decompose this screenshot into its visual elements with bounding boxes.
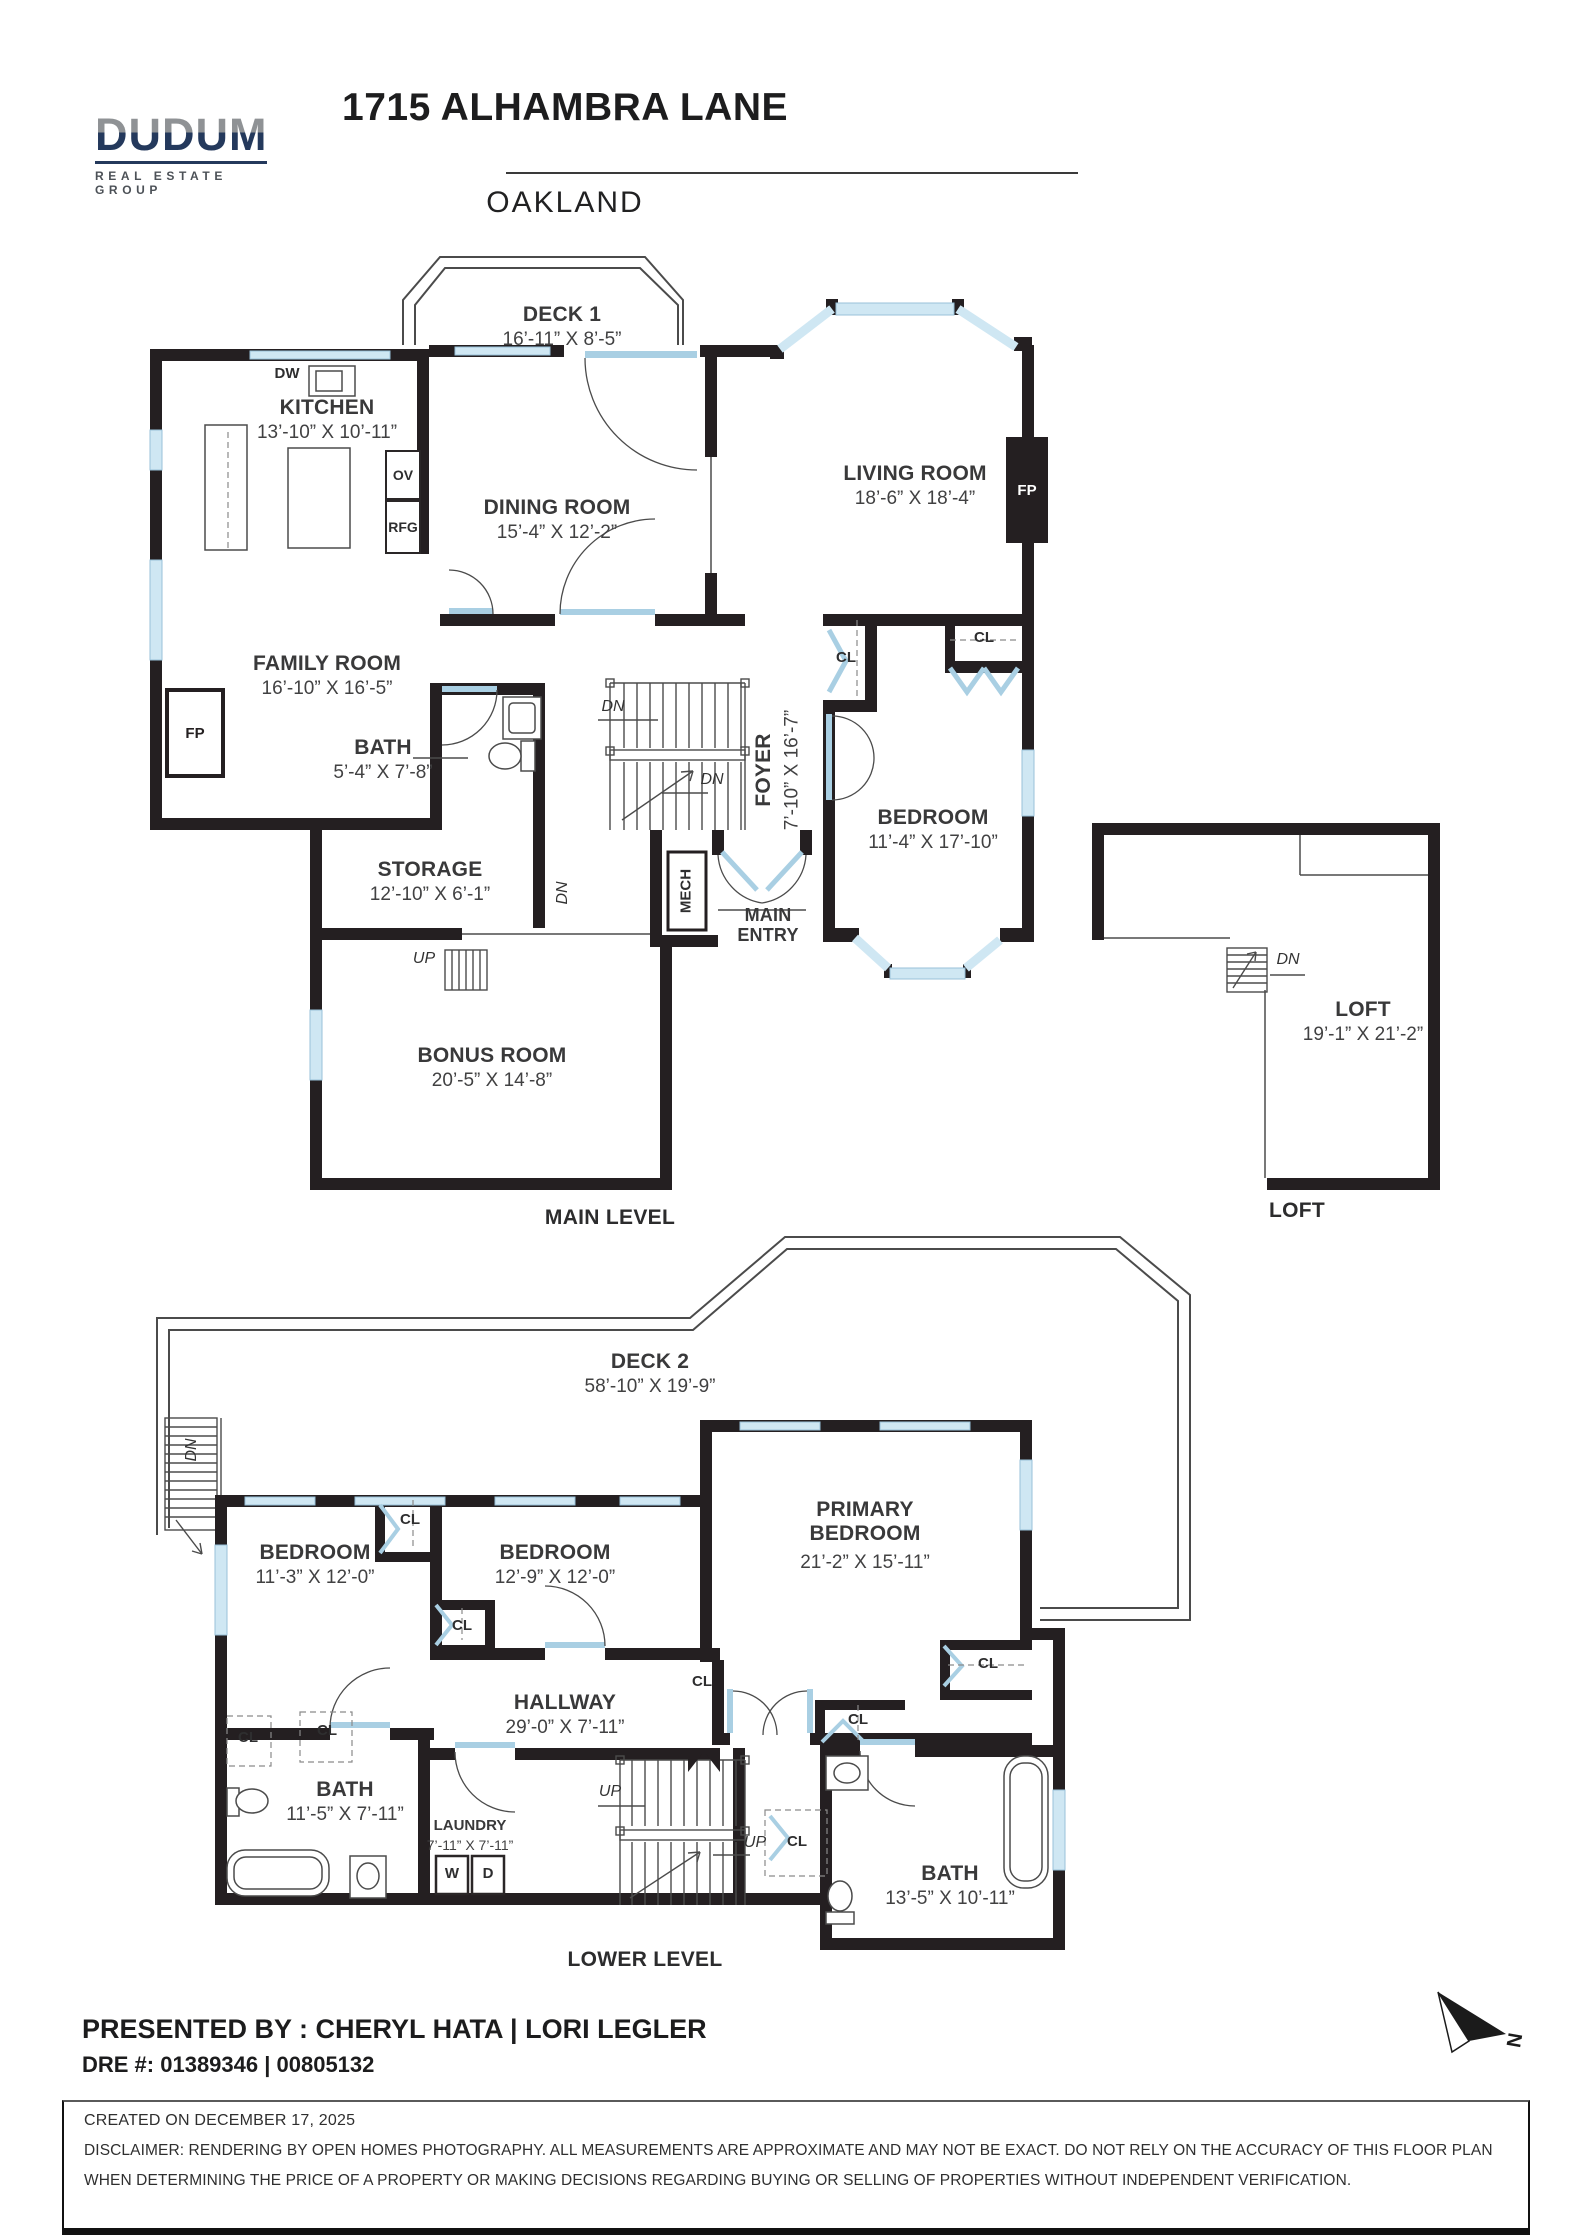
- room-bath-main-name: BATH: [354, 736, 412, 760]
- room-foyer-name: FOYER: [752, 733, 776, 806]
- brand-rule: [95, 161, 267, 164]
- room-storage-dims: 12’-10” X 6’-1”: [370, 884, 490, 905]
- disclaimer-line1: DISCLAIMER: RENDERING BY OPEN HOMES PHOT…: [84, 2142, 1493, 2160]
- closet-bedrooms-label: CL: [400, 1512, 420, 1529]
- room-living-dims: 18’-6” X 18’-4”: [855, 488, 975, 509]
- floorplan-page: DUDUM REAL ESTATE GROUP 1715 ALHAMBRA LA…: [0, 0, 1584, 2240]
- loft-caption: LOFT: [1269, 1199, 1325, 1223]
- oven-label: OV: [385, 450, 421, 500]
- room-deck1-dims: 16’-11” X 8’-5”: [503, 329, 622, 350]
- room-bath1-dims: 11’-5” X 7’-11”: [286, 1804, 404, 1825]
- room-primary-dims: 21’-2” X 15’-11”: [800, 1552, 930, 1573]
- room-bath1-name: BATH: [316, 1778, 374, 1802]
- closet-primary2-label: CL: [848, 1712, 868, 1729]
- lower-stairs: [598, 1756, 750, 1905]
- room-family-name: FAMILY ROOM: [253, 652, 401, 676]
- presented-by: PRESENTED BY : CHERYL HATA | LORI LEGLER: [82, 2014, 707, 2045]
- room-hallway-dims: 29’-0” X 7’-11”: [506, 1717, 625, 1738]
- room-hallway-name: HALLWAY: [514, 1691, 616, 1715]
- room-dining-dims: 15’-4” X 12’-2”: [497, 522, 617, 543]
- room-bedroom-main-name: BEDROOM: [877, 806, 988, 830]
- stair-dn-deck2-label: DN: [183, 1438, 201, 1461]
- room-laundry-name: LAUNDRY: [434, 1818, 507, 1835]
- stair-dn-loft-label: DN: [1276, 951, 1299, 969]
- lower-level-caption: LOWER LEVEL: [568, 1948, 723, 1972]
- closet-stairs-label: CL: [787, 1834, 807, 1851]
- title-rule: [506, 172, 1078, 174]
- closet-bath1b-label: CL: [317, 1723, 337, 1740]
- room-kitchen-dims: 13’-10” X 10’-11”: [257, 422, 397, 443]
- closet-primary-right-label: CL: [978, 1656, 998, 1673]
- page-title: 1715 ALHAMBRA LANE: [342, 86, 788, 130]
- brand-name: DUDUM: [95, 112, 285, 157]
- room-bonus-name: BONUS ROOM: [418, 1044, 567, 1068]
- room-bath-main-dims: 5’-4” X 7’-8”: [333, 762, 432, 783]
- main-stairs: [445, 679, 1267, 992]
- washer-label: W: [445, 1866, 459, 1883]
- disclaimer-line2: WHEN DETERMINING THE PRICE OF A PROPERTY…: [84, 2172, 1351, 2190]
- room-loft-name: LOFT: [1335, 998, 1391, 1022]
- dishwasher-label: DW: [275, 366, 300, 383]
- stair-up2-label: UP: [744, 1834, 766, 1852]
- room-deck1-name: DECK 1: [523, 303, 601, 327]
- north-arrow-icon: [1438, 1992, 1506, 2052]
- room-foyer-dims: 7’-10” X 16’-7”: [781, 710, 802, 830]
- fireplace-living-label: FP: [1006, 437, 1048, 543]
- room-family-dims: 16’-10” X 16’-5”: [262, 678, 393, 699]
- created-date: CREATED ON DECEMBER 17, 2025: [84, 2112, 355, 2130]
- room-bath2-name: BATH: [921, 1862, 979, 1886]
- page-subtitle: OAKLAND: [486, 186, 643, 220]
- closet-bedroom2-label: CL: [452, 1618, 472, 1635]
- room-bedroom1-name: BEDROOM: [259, 1541, 370, 1565]
- stair-dn2-label: DN: [700, 771, 723, 789]
- mech-label: MECH: [679, 869, 696, 913]
- refrigerator-label: RFG: [385, 500, 421, 554]
- fireplace-family-label: FP: [165, 688, 225, 778]
- floor-plan-drawing: [0, 0, 1584, 2240]
- dre-number: DRE #: 01389346 | 00805132: [82, 2052, 374, 2078]
- brand-logo: DUDUM REAL ESTATE GROUP: [95, 112, 285, 197]
- room-bedroom2-name: BEDROOM: [499, 1541, 610, 1565]
- closet-hall-label: CL: [692, 1674, 712, 1691]
- room-kitchen-name: KITCHEN: [280, 396, 375, 420]
- room-storage-name: STORAGE: [378, 858, 483, 882]
- stair-up1-label: UP: [599, 1783, 621, 1801]
- closet-bedroom-label: CL: [974, 630, 994, 647]
- dryer-label: D: [483, 1866, 494, 1883]
- room-living-name: LIVING ROOM: [843, 462, 986, 486]
- room-bath2-dims: 13’-5” X 10’-11”: [885, 1888, 1015, 1909]
- main-entry-label: MAIN ENTRY: [713, 905, 823, 945]
- room-primary-name: PRIMARY BEDROOM: [775, 1498, 955, 1545]
- stair-up-bonus-label: UP: [413, 950, 435, 968]
- room-bedroom2-dims: 12’-9” X 12’-0”: [495, 1567, 615, 1588]
- room-bonus-dims: 20’-5” X 14’-8”: [432, 1070, 552, 1091]
- main-level-caption: MAIN LEVEL: [545, 1206, 675, 1230]
- lower-level-windows: [215, 1422, 1065, 1870]
- main-door-arcs: [442, 358, 874, 903]
- room-laundry-dims: 7’-11” X 7’-11”: [427, 1838, 514, 1854]
- room-bedroom-main-dims: 11’-4” X 17’-10”: [868, 832, 998, 853]
- room-loft-dims: 19’-1” X 21’-2”: [1303, 1024, 1423, 1045]
- brand-tagline: REAL ESTATE GROUP: [95, 169, 285, 197]
- stair-dn-storage-label: DN: [554, 881, 572, 904]
- stair-dn1-label: DN: [601, 698, 624, 716]
- closet-foyer-label: CL: [836, 650, 856, 667]
- room-deck2-name: DECK 2: [611, 1350, 689, 1374]
- closet-bath1a-label: CL: [238, 1730, 258, 1747]
- room-bedroom1-dims: 11’-3” X 12’-0”: [256, 1567, 375, 1588]
- room-deck2-dims: 58’-10” X 19’-9”: [585, 1376, 716, 1397]
- room-dining-name: DINING ROOM: [484, 496, 631, 520]
